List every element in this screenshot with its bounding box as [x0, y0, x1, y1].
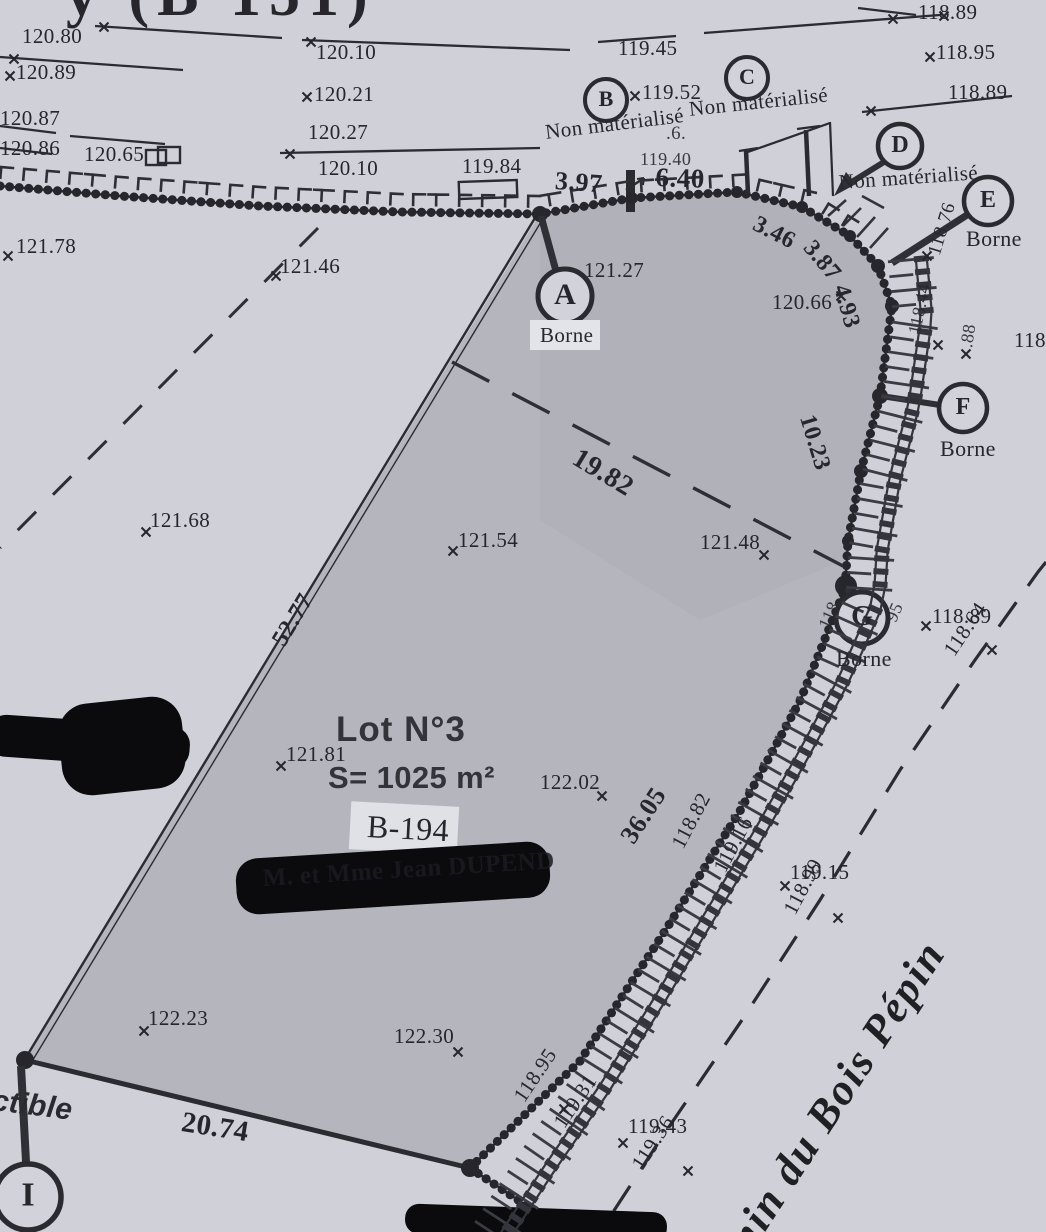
s118-cut-label: 118 — [1014, 330, 1046, 351]
s-88-label: .88 — [957, 323, 978, 349]
point-letter-c: C — [739, 66, 755, 88]
s120-80-label: 120.80 — [22, 26, 82, 47]
area-label: S= 1025 m² — [328, 762, 495, 793]
s121-46-label: 121.46 — [280, 256, 340, 277]
s120-86-label: 120.86 — [0, 138, 60, 159]
s120-10a-label: 120.10 — [316, 42, 376, 63]
s119-45-label: 119.45 — [618, 38, 677, 59]
s121-78-label: 121.78 — [16, 236, 76, 257]
survey-plan-page: y (B 151)120.80120.89120.87120.86120.651… — [0, 0, 1046, 1232]
s118-95a-label: 118.95 — [936, 42, 995, 63]
s120-87-label: 120.87 — [0, 108, 60, 129]
point-letter-e: E — [980, 188, 996, 212]
point-letter-f: F — [956, 395, 971, 419]
s118-89a-label: 118.89 — [918, 2, 977, 23]
s120-27-label: 120.27 — [308, 122, 368, 143]
point-letter-g: G — [851, 603, 873, 631]
borne-label: Borne — [540, 325, 593, 346]
title-fragment-label: y (B 151) — [66, 0, 376, 26]
s118-89b-label: 118.89 — [948, 82, 1007, 103]
s121-68-label: 121.68 — [150, 510, 210, 531]
d3-97-label: 3.97 — [554, 168, 603, 197]
s121-27-label: 121.27 — [584, 260, 644, 281]
s122-23-label: 122.23 — [148, 1008, 208, 1029]
s120-65-label: 120.65 — [84, 144, 144, 165]
parcel-ref-label: B-194 — [366, 810, 450, 846]
s120-21-label: 120.21 — [314, 84, 374, 105]
s122-02-label: 122.02 — [540, 772, 600, 793]
point-letter-b: B — [599, 88, 614, 110]
s122-30-label: 122.30 — [394, 1026, 454, 1047]
lot-title-label: Lot N°3 — [336, 712, 466, 747]
s121-54-label: 121.54 — [458, 530, 518, 551]
s120-66-label: 120.66 — [772, 292, 832, 313]
point-letter-i: I — [21, 1179, 34, 1213]
borne-label: Borne — [966, 228, 1022, 250]
s119-84-label: 119.84 — [462, 156, 521, 177]
point-letter-a: A — [554, 280, 576, 310]
s120-10b-label: 120.10 — [318, 158, 378, 179]
point-letter-d: D — [891, 133, 908, 157]
borne-label: Borne — [940, 438, 996, 460]
s121-48-label: 121.48 — [700, 532, 760, 553]
d6-40-label: 6.40 — [655, 164, 705, 193]
fragment-dot6-label: .6. — [666, 124, 686, 143]
s120-89-label: 120.89 — [16, 62, 76, 83]
borne-label: Borne — [836, 648, 892, 670]
